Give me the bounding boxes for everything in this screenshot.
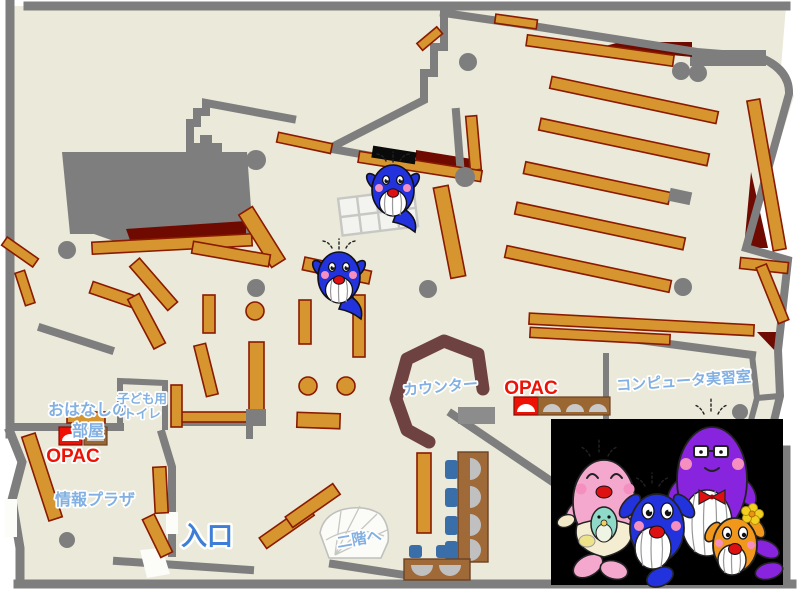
bookshelf: [171, 385, 182, 427]
round-table: [299, 377, 317, 395]
label-kids-toilet: トイレ: [123, 407, 161, 421]
pillar: [247, 279, 265, 297]
pillar: [732, 404, 748, 420]
pillar: [419, 280, 437, 298]
pillar: [246, 150, 266, 170]
chair: [445, 488, 458, 507]
counter-desk: [458, 407, 495, 424]
label-kids-toilet: 子ども用: [117, 392, 167, 406]
floor-map-svg: おはなしの 部屋 子ども用 トイレ OPAC 情報プラザ 入口 二階へ カウンタ…: [0, 0, 800, 590]
chair: [436, 545, 449, 558]
pillar: [672, 62, 690, 80]
doorway: [166, 512, 178, 534]
chair: [445, 460, 458, 479]
bookshelf: [180, 412, 247, 422]
bookshelf: [299, 300, 311, 344]
pillar: [59, 532, 75, 548]
label-storytelling-room: 部屋: [72, 421, 104, 440]
pillar: [674, 278, 692, 296]
chair: [409, 545, 422, 558]
pillar: [689, 64, 707, 82]
label-entrance: 入口: [181, 521, 233, 551]
round-table: [337, 377, 355, 395]
bookshelf: [417, 453, 431, 533]
pillar: [58, 241, 76, 259]
bookshelf: [153, 467, 168, 514]
opac-terminals-right: [514, 397, 610, 415]
round-table: [246, 302, 264, 320]
library-floor-map: おはなしの 部屋 子ども用 トイレ OPAC 情報プラザ 入口 二階へ カウンタ…: [0, 0, 800, 590]
bookshelf: [249, 342, 264, 412]
chair: [445, 516, 458, 535]
wall-stub: [246, 426, 253, 439]
bookshelf: [297, 412, 340, 428]
pillar: [455, 167, 475, 187]
label-opac-right: OPAC: [504, 378, 558, 399]
pillar: [459, 53, 477, 71]
label-opac-left: OPAC: [46, 446, 100, 467]
doorway: [5, 499, 17, 537]
wall-end-block: [246, 409, 266, 426]
label-info-plaza: 情報プラザ: [55, 490, 135, 509]
bookshelf: [203, 295, 215, 333]
